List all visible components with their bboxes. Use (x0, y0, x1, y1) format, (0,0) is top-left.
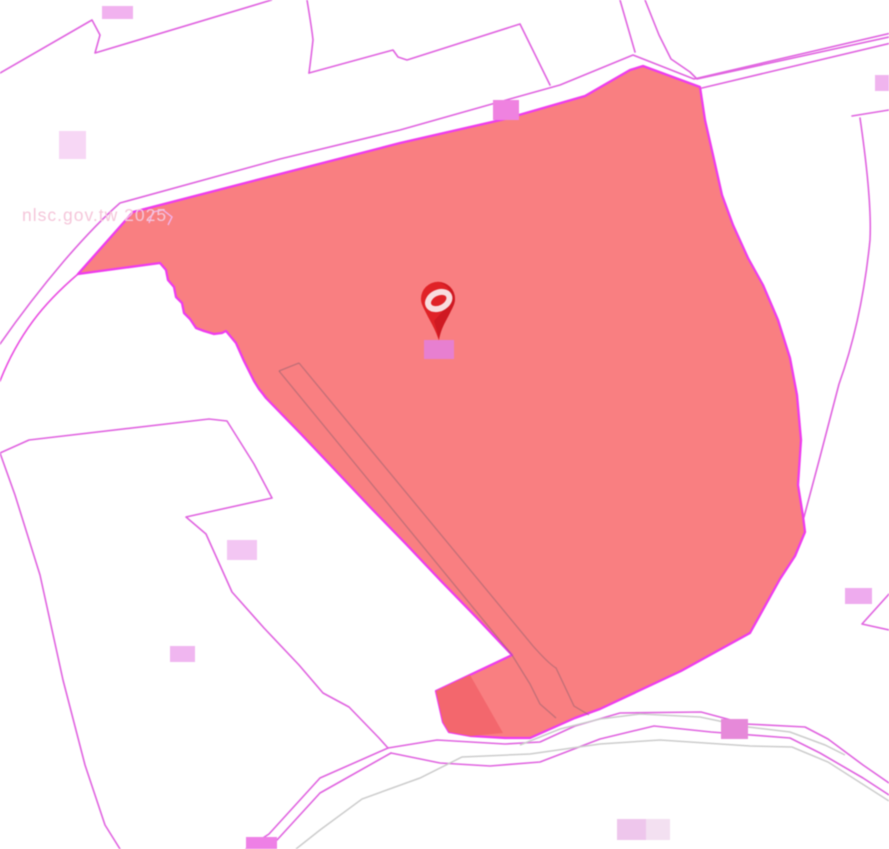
svg-text:nlsc.gov.tw 2025: nlsc.gov.tw 2025 (22, 205, 167, 225)
